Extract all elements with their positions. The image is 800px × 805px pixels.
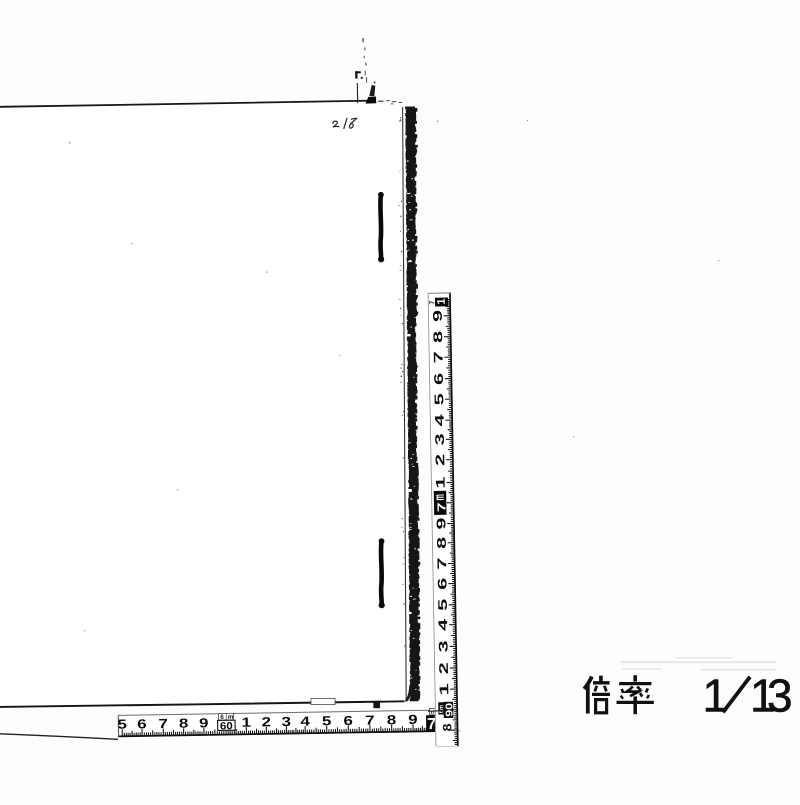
svg-text:3: 3 [436, 640, 450, 652]
svg-text:8: 8 [431, 331, 445, 343]
svg-text:8: 8 [387, 713, 397, 728]
svg-text:7: 7 [435, 557, 449, 569]
svg-text:6: 6 [343, 714, 353, 729]
svg-text:9: 9 [430, 310, 444, 322]
svg-text:60: 60 [220, 721, 233, 733]
svg-text:8: 8 [440, 723, 454, 731]
svg-text:5: 5 [435, 599, 449, 611]
svg-text:6: 6 [431, 373, 445, 385]
svg-text:5: 5 [117, 717, 127, 732]
svg-text:1: 1 [436, 298, 448, 304]
svg-text:8: 8 [179, 716, 189, 731]
svg-text:m: m [228, 714, 234, 721]
svg-text:6m: 6m [439, 705, 445, 713]
svg-text:1: 1 [241, 715, 251, 730]
svg-text:7: 7 [429, 300, 436, 304]
svg-text:3: 3 [281, 715, 291, 730]
svg-text:2: 2 [433, 454, 447, 466]
svg-text:4: 4 [300, 714, 310, 729]
svg-text:1: 1 [433, 476, 447, 488]
svg-text:7: 7 [431, 351, 445, 363]
svg-text:8: 8 [434, 537, 448, 549]
svg-text:7: 7 [158, 717, 168, 732]
svg-text:2: 2 [261, 715, 271, 730]
svg-text:4: 4 [432, 414, 446, 426]
svg-text:6: 6 [435, 577, 449, 589]
svg-text:m: m [433, 494, 448, 501]
svg-text:3: 3 [432, 433, 446, 445]
svg-text:1: 1 [437, 683, 451, 695]
svg-text:7: 7 [436, 502, 449, 512]
svg-text:9: 9 [199, 716, 209, 731]
svg-text:9: 9 [408, 713, 418, 728]
svg-text:2: 2 [436, 662, 450, 674]
svg-text:4: 4 [436, 619, 450, 631]
svg-text:5: 5 [322, 714, 332, 729]
svg-text:6: 6 [137, 717, 147, 732]
svg-text:3: 3 [767, 670, 793, 722]
svg-text:1: 1 [703, 670, 729, 722]
svg-text:5: 5 [432, 393, 446, 405]
svg-text:90: 90 [444, 703, 455, 717]
svg-text:7: 7 [365, 713, 375, 728]
svg-text:9: 9 [434, 517, 448, 529]
